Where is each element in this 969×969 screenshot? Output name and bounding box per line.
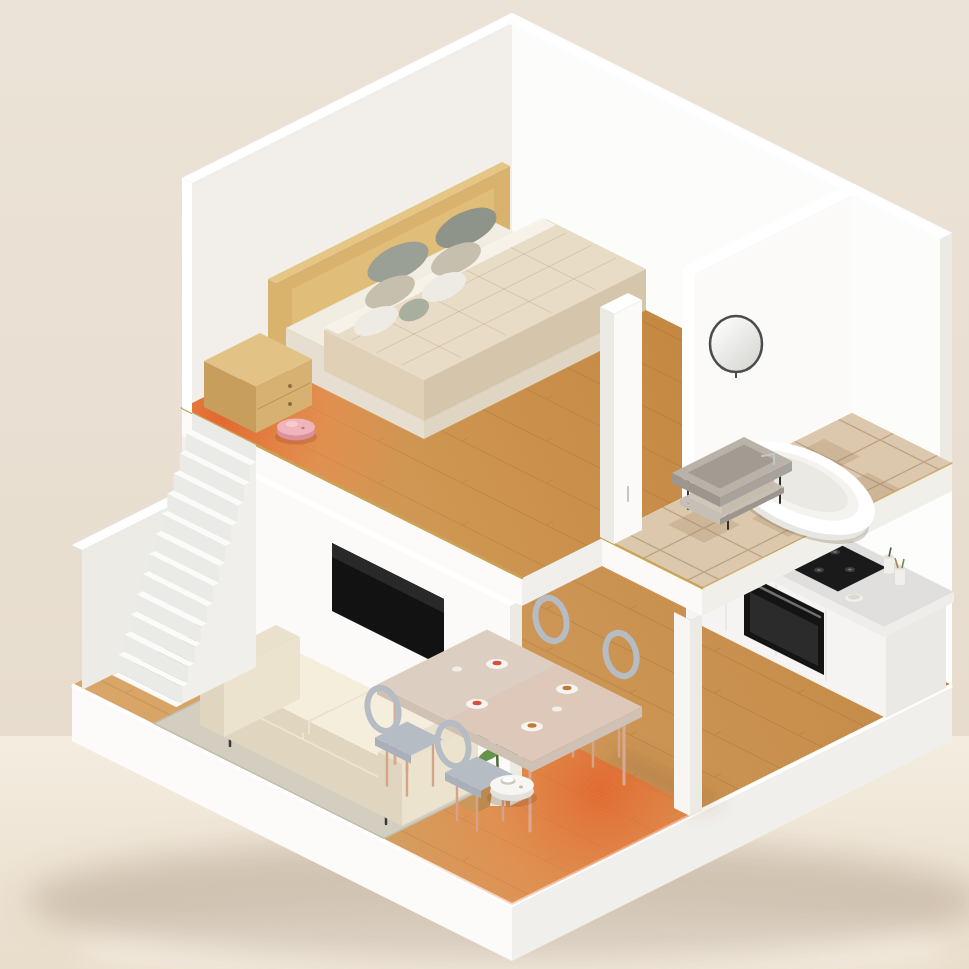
- utensil-cup-1-rim: [895, 566, 905, 570]
- pink-robot-top: [277, 419, 315, 436]
- utensil-cup-2: [884, 557, 894, 574]
- nightstand-knob-1: [288, 384, 292, 388]
- door-jamb-wall-side: [614, 300, 642, 544]
- kitchen-bowl-in: [848, 595, 860, 600]
- hob-burner-cap-1: [833, 551, 837, 553]
- hob-burner-cap-2: [848, 569, 852, 571]
- support-column-front: [674, 612, 690, 816]
- nightstand-knob-2: [288, 402, 292, 406]
- sofa-armrest-right-front: [378, 752, 402, 826]
- utensil-cup-1: [895, 568, 905, 585]
- upper-wall-back-right-end: [940, 233, 952, 469]
- table-food-1: [563, 686, 572, 690]
- upper-wall-back-left-end: [182, 178, 192, 413]
- door-jamb-wall-front: [600, 307, 614, 544]
- white-robot-sensor: [519, 786, 523, 789]
- table-food-2: [473, 701, 482, 705]
- isometric-house-render: [0, 0, 969, 969]
- support-column-side: [690, 614, 702, 816]
- pink-robot-button: [301, 427, 304, 429]
- table-food-3: [528, 723, 537, 727]
- table-cup-1: [552, 707, 562, 712]
- pink-robot-lidar: [286, 421, 298, 427]
- table-cup-0: [452, 667, 462, 672]
- render-stage: [0, 0, 969, 969]
- hob-burner-cap-4: [817, 569, 821, 571]
- round-mirror: [710, 316, 762, 372]
- white-robot-lidar: [502, 777, 514, 783]
- table-food-0: [493, 661, 502, 665]
